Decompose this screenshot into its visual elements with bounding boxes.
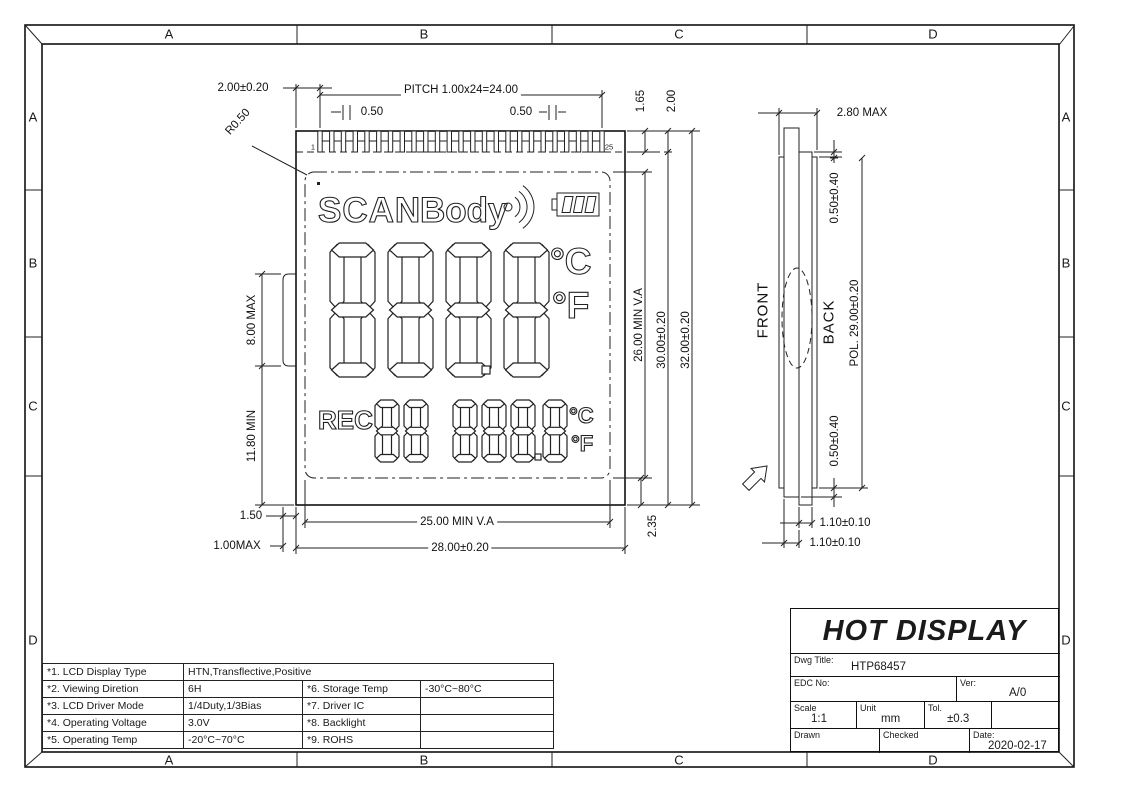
dimension-line (25, 752, 42, 767)
side-view-dashed-feature (782, 268, 812, 368)
connector-pin (588, 131, 592, 152)
dim-glass-back: 1.10±0.10 (819, 517, 870, 529)
connector-pin (318, 131, 322, 152)
spec-label: *8. Backlight (303, 715, 421, 732)
edc-label: EDC No: (794, 678, 830, 688)
lcd-sub-fahrenheit-label: °F (571, 431, 593, 456)
spec-value: 3.0V (184, 715, 303, 732)
table-row: *5. Operating Temp -20°C~70°C *9. ROHS (43, 732, 554, 749)
title-block: HOT DISPLAY Dwg Title: HTP68457 EDC No: … (790, 608, 1059, 752)
connector-pin (506, 131, 510, 152)
lcd-celsius-label: °C (550, 241, 592, 282)
table-row: *1. LCD Display Type HTN,Transflective,P… (43, 664, 554, 681)
zone-col-d-top: D (928, 27, 937, 42)
spec-value: 6H (184, 681, 303, 698)
connector-pin (330, 131, 334, 152)
checked-label: Checked (883, 730, 919, 740)
spec-label: *6. Storage Temp (303, 681, 421, 698)
drawn-label: Drawn (794, 730, 820, 740)
connector-pin (494, 131, 498, 152)
connector-pin (400, 131, 404, 152)
front-glass (784, 128, 799, 497)
spec-label: *5. Operating Temp (43, 732, 184, 749)
zone-row-c-left: C (28, 399, 37, 414)
dim-height-total: 32.00±0.20 (680, 311, 692, 368)
unit-label: Unit (860, 703, 876, 713)
zone-col-c-top: C (674, 27, 683, 42)
checked-cell: Checked (879, 728, 969, 753)
side-front-label: FRONT (755, 282, 772, 339)
zone-col-d-bottom: D (928, 753, 937, 768)
zone-row-b-right: B (1062, 256, 1071, 271)
zone-row-d-left: D (28, 633, 37, 648)
left-tab (283, 274, 296, 366)
ver-cell: Ver: A/0 (956, 676, 1060, 701)
pin-number-last: 25 (605, 143, 613, 152)
spec-value: HTN,Transflective,Positive (184, 664, 554, 681)
dwg-title-cell: Dwg Title: HTP68457 (791, 653, 1060, 676)
dim-bottom-offset-1: 1.50 (240, 510, 262, 522)
lcd-scan-label: SCAN (318, 191, 421, 230)
dim-bottom-offset-2: 1.00MAX (213, 540, 260, 552)
zone-col-b-bottom: B (420, 753, 429, 768)
zone-row-b-left: B (29, 256, 38, 271)
ver-value: A/0 (1009, 687, 1026, 699)
drawn-cell: Drawn (791, 728, 879, 753)
date-cell: Date: 2020-02-17 (969, 728, 1060, 753)
connector-pin (553, 131, 557, 152)
spec-label: *1. LCD Display Type (43, 664, 184, 681)
dimension-line (1059, 752, 1074, 767)
spec-value (421, 732, 554, 749)
date-value: 2020-02-17 (988, 740, 1047, 752)
dim-va-height: 26.00 MIN V.A (633, 288, 645, 362)
dim-top-right-1: 1.65 (635, 90, 647, 112)
dim-tab-to-bottom: 11.80 MIN (246, 410, 258, 462)
dimension-line (25, 25, 42, 44)
spec-label: *4. Operating Voltage (43, 715, 184, 732)
dimension-line (1059, 26, 1074, 45)
lcd-body-label: Body (420, 191, 508, 230)
dim-pol-length: POL. 29.00±0.20 (849, 280, 861, 367)
connector-pin (353, 131, 357, 152)
connector-pin (565, 131, 569, 152)
dim-va-width: 25.00 MIN V.A (417, 516, 497, 528)
connector-pin (541, 131, 545, 152)
dim-lead-offset: 2.00±0.20 (217, 82, 268, 94)
tol-value: ±0.3 (947, 713, 969, 725)
lcd-rec-label: REC (318, 405, 373, 435)
spec-label: *7. Driver IC (303, 698, 421, 715)
zone-col-c-bottom: C (674, 753, 683, 768)
connector-pin (447, 131, 451, 152)
table-row: *2. Viewing Diretion 6H *6. Storage Temp… (43, 681, 554, 698)
lcd-sub-celsius-label: °C (569, 403, 594, 428)
connector-pin (529, 131, 533, 152)
connector-pin (388, 131, 392, 152)
connector-pin (600, 131, 604, 152)
dim-pin-width-left: 0.50 (361, 106, 383, 118)
connector-pin (576, 131, 580, 152)
dimension-line (252, 146, 307, 175)
side-back-label: BACK (821, 300, 838, 345)
zone-col-a-bottom: A (165, 753, 174, 768)
zone-col-a-top: A (165, 27, 174, 42)
spec-label: *3. LCD Driver Mode (43, 698, 184, 715)
wireless-icon (504, 186, 534, 229)
connector-pin (518, 131, 522, 152)
zone-col-b-top: B (420, 27, 429, 42)
dim-pitch: PITCH 1.00x24=24.00 (401, 84, 521, 96)
connector-pin (471, 131, 475, 152)
scale-label: Scale (794, 703, 817, 713)
tol-label: Tol. (928, 703, 942, 713)
ver-label: Ver: (960, 678, 976, 688)
view-direction-arrow-icon (743, 466, 767, 490)
dim-side-thickness: 2.80 MAX (837, 107, 888, 119)
dwg-title-label: Dwg Title: (794, 655, 834, 665)
spec-value (421, 698, 554, 715)
connector-pin (377, 131, 381, 152)
scale-value: 1:1 (811, 713, 827, 725)
spec-table: *1. LCD Display Type HTN,Transflective,P… (42, 663, 554, 749)
edc-cell: EDC No: (791, 676, 956, 701)
connector-pin (424, 131, 428, 152)
scale-cell: Scale 1:1 (791, 701, 856, 728)
dim-va-to-edge: 2.35 (647, 515, 659, 537)
spec-label: *9. ROHS (303, 732, 421, 749)
dim-top-right-2: 2.00 (666, 90, 678, 112)
back-polarizer (812, 157, 817, 488)
dim-pol-offset-top: 0.50±0.40 (829, 172, 841, 223)
unit-value: mm (881, 713, 900, 725)
spec-value: -20°C~70°C (184, 732, 303, 749)
pin-number-first: 1 (311, 143, 315, 152)
dwg-title-value: HTP68457 (851, 661, 906, 673)
dim-height-inner: 30.00±0.20 (656, 311, 668, 368)
connector-pin (459, 131, 463, 152)
table-row: *4. Operating Voltage 3.0V *8. Backlight (43, 715, 554, 732)
spec-value: -30°C~80°C (421, 681, 554, 698)
lcd-fahrenheit-label: °F (552, 285, 589, 326)
zone-row-a-left: A (29, 110, 38, 125)
date-label: Date: (973, 730, 995, 740)
table-row: *3. LCD Driver Mode 1/4Duty,1/3Bias *7. … (43, 698, 554, 715)
dim-glass-front: 1.10±0.10 (809, 537, 860, 549)
front-polarizer (779, 157, 784, 488)
zone-row-a-right: A (1062, 110, 1071, 125)
spec-value (421, 715, 554, 732)
pin1-indicator-dot (317, 182, 320, 185)
company-name: HOT DISPLAY (791, 609, 1058, 653)
unit-cell: Unit mm (856, 701, 924, 728)
tol-cell: Tol. ±0.3 (924, 701, 991, 728)
zone-row-c-right: C (1061, 399, 1070, 414)
projection-cell (991, 701, 1060, 728)
connector-pin (412, 131, 416, 152)
connector-pin (435, 131, 439, 152)
drawing-sheet: SCAN Body °C °F REC °C °F (0, 0, 1123, 794)
spec-value: 1/4Duty,1/3Bias (184, 698, 303, 715)
connector-pin (365, 131, 369, 152)
dim-pin-width-right: 0.50 (510, 106, 532, 118)
connector-pin (482, 131, 486, 152)
battery-icon (552, 193, 599, 216)
dim-tab-height: 8.00 MAX (246, 295, 258, 346)
connector-pin (341, 131, 345, 152)
zone-row-d-right: D (1061, 633, 1070, 648)
dim-pol-offset-bottom: 0.50±0.40 (829, 415, 841, 466)
spec-label: *2. Viewing Diretion (43, 681, 184, 698)
dim-width-total: 28.00±0.20 (428, 542, 491, 554)
back-glass (799, 152, 812, 505)
